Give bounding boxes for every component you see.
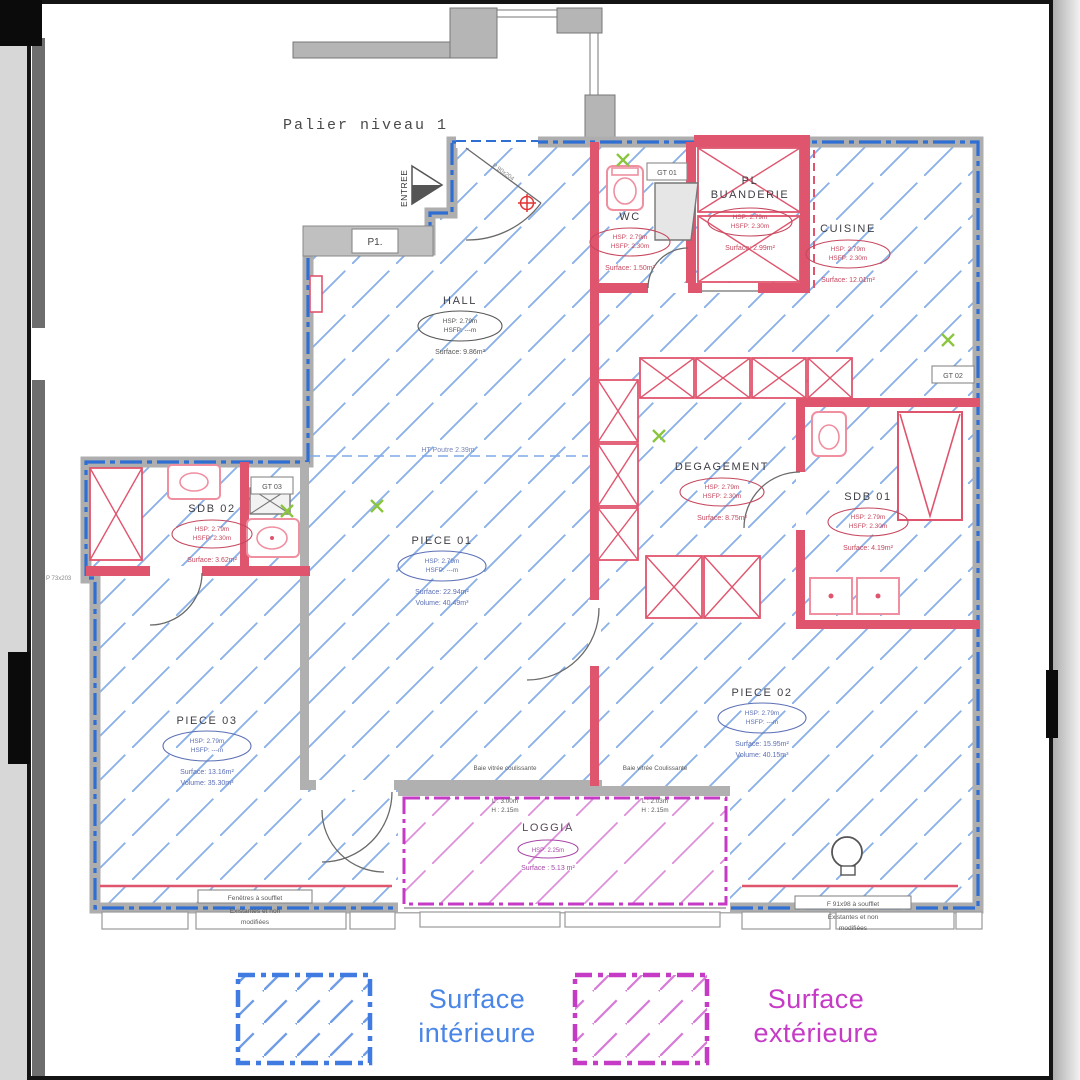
gt02-label: GT 02 [943, 371, 963, 380]
buanderie-pl: PL [742, 175, 759, 187]
hall-surface: Surface: 9.86m² [435, 349, 485, 356]
washbasin-sdb02-top [168, 465, 220, 499]
top-edge-line [31, 0, 1050, 4]
window-note-right-l3: modifiées [839, 925, 868, 932]
palier-label: Palier niveau 1 [283, 117, 448, 134]
wc-hsp: HSP: 2.79m [613, 234, 647, 241]
legend-exterior-line2: extérieure [753, 1018, 878, 1048]
loggia-surface: Surface : 5.13 m² [521, 865, 575, 872]
entree-label: ENTREE [399, 170, 409, 207]
piece03-surface: Surface: 13.16m² [180, 769, 234, 776]
wc-name: WC [619, 211, 641, 223]
bay-right-label: Baie vitrée Coulissante [623, 765, 688, 772]
sdb02-hsfp: HSFP: 2.30m [193, 535, 231, 542]
floor-plan-page: Palier niveau 1 P1. [0, 0, 1080, 1080]
bottom-edge-line [31, 1076, 1050, 1080]
piece03-name: PIECE 03 [176, 715, 237, 727]
piece03-hsfp: HSFP: ---m [191, 747, 223, 754]
degagement-name: DEGAGEMENT [675, 461, 769, 473]
window-note-left-l1: Fenêtres à soufflet [228, 895, 283, 902]
legend-interior-line1: Surface [429, 984, 526, 1014]
hall-hsfp: HSFP: ---m [444, 327, 476, 334]
gt03-label: GT 03 [262, 482, 282, 491]
piece03-volume: Volume: 35.30m³ [181, 780, 235, 787]
cuisine-surface: Surface: 12.01m² [821, 277, 875, 284]
bay-left-dim2: H : 2.15m [491, 807, 518, 814]
bay-left-label: Baie vitrée coulissante [473, 765, 537, 772]
hall-hsp: HSP: 2.79m [443, 318, 477, 325]
right-edge-line [1049, 0, 1053, 1080]
toilet-sdb01 [812, 412, 846, 456]
left-shadow-strip-top [32, 38, 45, 328]
left-shadow-strip-bottom [32, 380, 45, 1080]
degagement-hsfp: HSFP: 2.30m [703, 493, 741, 500]
degagement-hsp: HSP: 2.79m [705, 484, 739, 491]
piece02-surface: Surface: 15.95m² [735, 741, 789, 748]
piece03-hsp: HSP: 2.79m [190, 738, 224, 745]
sdb02-surface: Surface: 3.62m² [187, 557, 237, 564]
legend: Surface intérieure Surface extérieure [238, 975, 879, 1063]
piece02-name: PIECE 02 [731, 687, 792, 699]
buanderie-hsp: HSP: 2.79m [733, 214, 767, 221]
duct-buanderie [655, 183, 698, 240]
window-note-left-l2: Existantes et non [230, 908, 281, 915]
right-margin [1053, 0, 1080, 1080]
legend-interior-swatch [238, 975, 370, 1063]
buanderie-hsfp: HSFP: 2.30m [731, 223, 769, 230]
bay-right-dim1: L : 2.03m [642, 798, 668, 805]
right-clip-mark [1046, 670, 1058, 738]
piece02-hsp: HSP: 2.79m [745, 710, 779, 717]
piece02-volume: Volume: 40.15m³ [736, 752, 790, 759]
window-note-right-l2: Existantes et non [828, 914, 879, 921]
legend-exterior-swatch [575, 975, 707, 1063]
top-left-corner-mark [0, 0, 42, 46]
loggia-hsp: HSP: 2.25m [532, 848, 564, 854]
cuisine-name: CUISINE [820, 223, 876, 235]
sdb01-hsp: HSP: 2.79m [851, 514, 885, 521]
sdb02-hsp: HSP: 2.79m [195, 526, 229, 533]
toilet-wc [607, 166, 643, 210]
wc-surface: Surface: 1.50m² [605, 265, 655, 272]
legend-interior-line2: intérieure [418, 1018, 536, 1048]
window-note-right-l1: F 91x98 à soufflet [827, 901, 879, 908]
buanderie-surface: Surface: 2.99m² [725, 245, 775, 252]
p1-label: P1. [367, 237, 382, 248]
sdb02-door-size: P 73x203 [46, 576, 72, 582]
window-note-left-l3: modifiées [241, 919, 270, 926]
piece01-surface: Surface: 22.94m² [415, 589, 469, 596]
sdb02-name: SDB 02 [188, 503, 236, 515]
piece01-hsp: HSP: 2.79m [425, 558, 459, 565]
cuisine-hsfp: HSFP: 2.30m [829, 255, 867, 262]
degagement-surface: Surface: 8.75m² [697, 515, 747, 522]
exterior-surface-hatch [404, 798, 726, 904]
piece01-hsfp: HSFP: ---m [426, 567, 458, 574]
washbasin-sdb02 [247, 519, 299, 557]
buanderie-name: BUANDERIE [711, 189, 790, 201]
bay-left-dim1: L : 3.00m [492, 798, 518, 805]
piece02-hsfp: HSFP: ---m [746, 719, 778, 726]
hall-name: HALL [443, 295, 477, 307]
left-clip-mark [8, 652, 30, 764]
left-margin [0, 0, 27, 1080]
beam-note: HT Poutre 2.39m [421, 447, 474, 454]
gt01-label: GT 01 [657, 168, 677, 177]
piece01-name: PIECE 01 [411, 535, 472, 547]
sdb01-hsfp: HSFP: 2.30m [849, 523, 887, 530]
entrance-arrow: ENTREE [399, 166, 442, 207]
sdb01-name: SDB 01 [844, 491, 892, 503]
cuisine-hsp: HSP: 2.79m [831, 246, 865, 253]
floor-plan-svg: Palier niveau 1 P1. [0, 0, 1080, 1080]
legend-exterior-line1: Surface [768, 984, 865, 1014]
loggia-name: LOGGIA [522, 822, 574, 834]
wc-hsfp: HSFP: 2.30m [611, 243, 649, 250]
sdb01-surface: Surface: 4.19m² [843, 545, 893, 552]
bay-right-dim2: H : 2.15m [641, 807, 668, 814]
shower-sdb01 [898, 412, 962, 520]
left-edge-line [27, 0, 31, 1080]
piece01-volume: Volume: 40.49m³ [416, 600, 470, 607]
